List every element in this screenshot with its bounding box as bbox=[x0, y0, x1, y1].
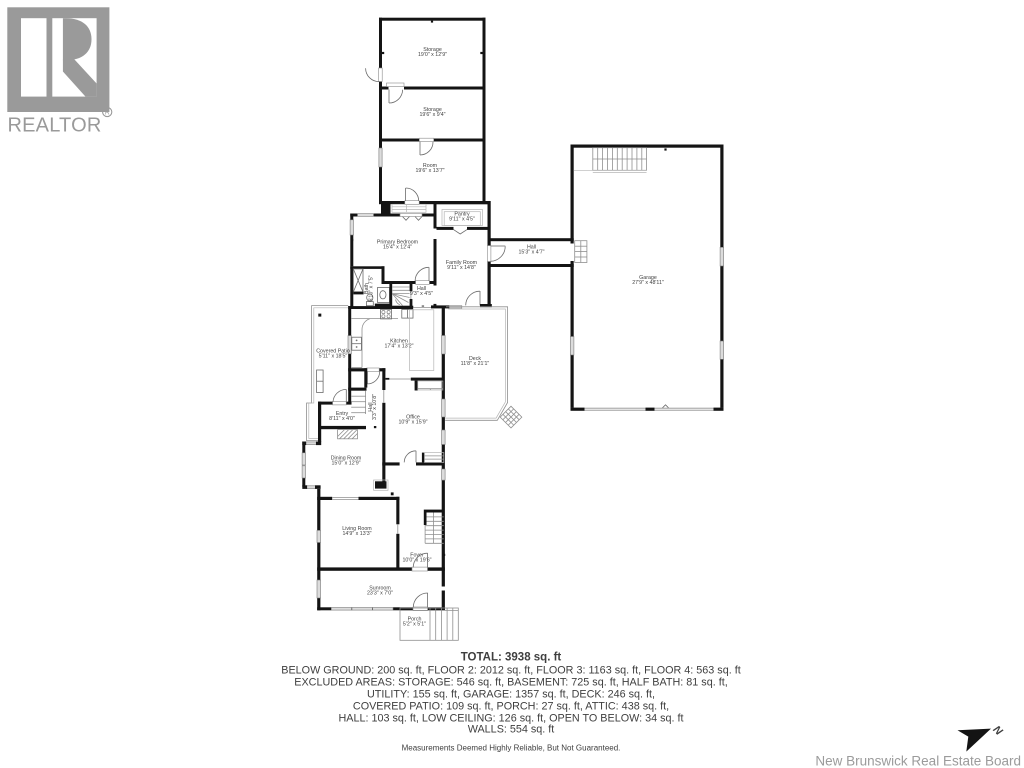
svg-text:COVERED PATIO: 109 sq. ft, POR: COVERED PATIO: 109 sq. ft, PORCH: 27 sq.… bbox=[353, 700, 669, 712]
svg-text:27'9" x 48'11": 27'9" x 48'11" bbox=[632, 280, 664, 286]
svg-text:5'2" x 5'1": 5'2" x 5'1" bbox=[403, 622, 426, 628]
svg-text:TOTAL: 3938 sq. ft: TOTAL: 3938 sq. ft bbox=[461, 651, 562, 663]
svg-text:3'3" x 10'8": 3'3" x 10'8" bbox=[372, 394, 378, 420]
svg-text:EXCLUDED AREAS: STORAGE: 546 s: EXCLUDED AREAS: STORAGE: 546 sq. ft, BAS… bbox=[294, 676, 727, 688]
svg-text:UTILITY: 155 sq. ft, GARAGE: 1: UTILITY: 155 sq. ft, GARAGE: 1357 sq. ft… bbox=[367, 688, 655, 700]
svg-text:23'3" x 7'0": 23'3" x 7'0" bbox=[367, 591, 393, 597]
svg-text:R: R bbox=[105, 110, 110, 117]
svg-text:19'6" x 9'4": 19'6" x 9'4" bbox=[419, 112, 445, 118]
svg-text:11'8" x 21'1": 11'8" x 21'1" bbox=[461, 361, 490, 367]
svg-text:REALTOR: REALTOR bbox=[8, 115, 102, 137]
svg-text:6'10" x 7'5": 6'10" x 7'5" bbox=[368, 275, 374, 301]
svg-text:15'4" x 12'4": 15'4" x 12'4" bbox=[383, 244, 412, 250]
svg-text:8'11" x 4'0": 8'11" x 4'0" bbox=[329, 416, 355, 422]
svg-text:15'3" x 4'7": 15'3" x 4'7" bbox=[518, 250, 544, 256]
svg-text:5'11" x 18'5": 5'11" x 18'5" bbox=[319, 354, 348, 360]
svg-text:9'11" x 4'5": 9'11" x 4'5" bbox=[449, 216, 475, 222]
svg-text:15'0" x 12'9": 15'0" x 12'9" bbox=[331, 461, 360, 467]
svg-text:Measurements Deemed Highly Rel: Measurements Deemed Highly Reliable, But… bbox=[402, 744, 621, 753]
svg-text:10'9" x 15'9": 10'9" x 15'9" bbox=[398, 420, 427, 426]
svg-text:19'0" x 12'9": 19'0" x 12'9" bbox=[418, 52, 447, 58]
svg-text:14'9" x 13'3": 14'9" x 13'3" bbox=[342, 531, 371, 537]
svg-text:9'11" x 14'8": 9'11" x 14'8" bbox=[447, 265, 476, 271]
svg-text:HALL: 103 sq. ft, LOW CEILING:: HALL: 103 sq. ft, LOW CEILING: 126 sq. f… bbox=[338, 712, 683, 724]
svg-text:9'3" x 4'5": 9'3" x 4'5" bbox=[410, 291, 433, 297]
svg-text:19'6" x 13'7": 19'6" x 13'7" bbox=[415, 168, 444, 174]
svg-text:WALLS: 554 sq. ft: WALLS: 554 sq. ft bbox=[468, 724, 555, 736]
svg-text:New Brunswick Real Estate Boar: New Brunswick Real Estate Board bbox=[815, 754, 1021, 768]
svg-text:BELOW GROUND: 200 sq. ft, FLOO: BELOW GROUND: 200 sq. ft, FLOOR 2: 2012 … bbox=[281, 664, 740, 676]
